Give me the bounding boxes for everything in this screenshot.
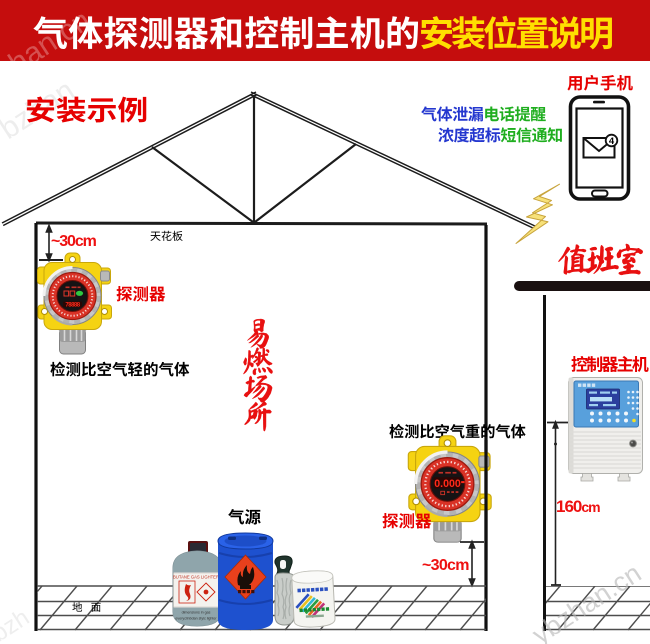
svg-text:4: 4 [609,136,615,147]
svg-text:wbzh: wbzh [0,604,34,644]
svg-text:~30cm: ~30cm [422,557,469,574]
svg-text:everyclinbdan stylc lighter: everyclinbdan stylc lighter [175,617,217,621]
svg-text:78888: 78888 [65,303,80,309]
svg-text:BUTANE GAS LIGHTER: BUTANE GAS LIGHTER [173,575,219,580]
svg-text:dimensions in gas: dimensions in gas [182,611,211,615]
svg-text:160cm: 160cm [556,497,600,516]
svg-text:~30cm: ~30cm [51,233,97,250]
svg-text:0.000: 0.000 [434,478,461,490]
